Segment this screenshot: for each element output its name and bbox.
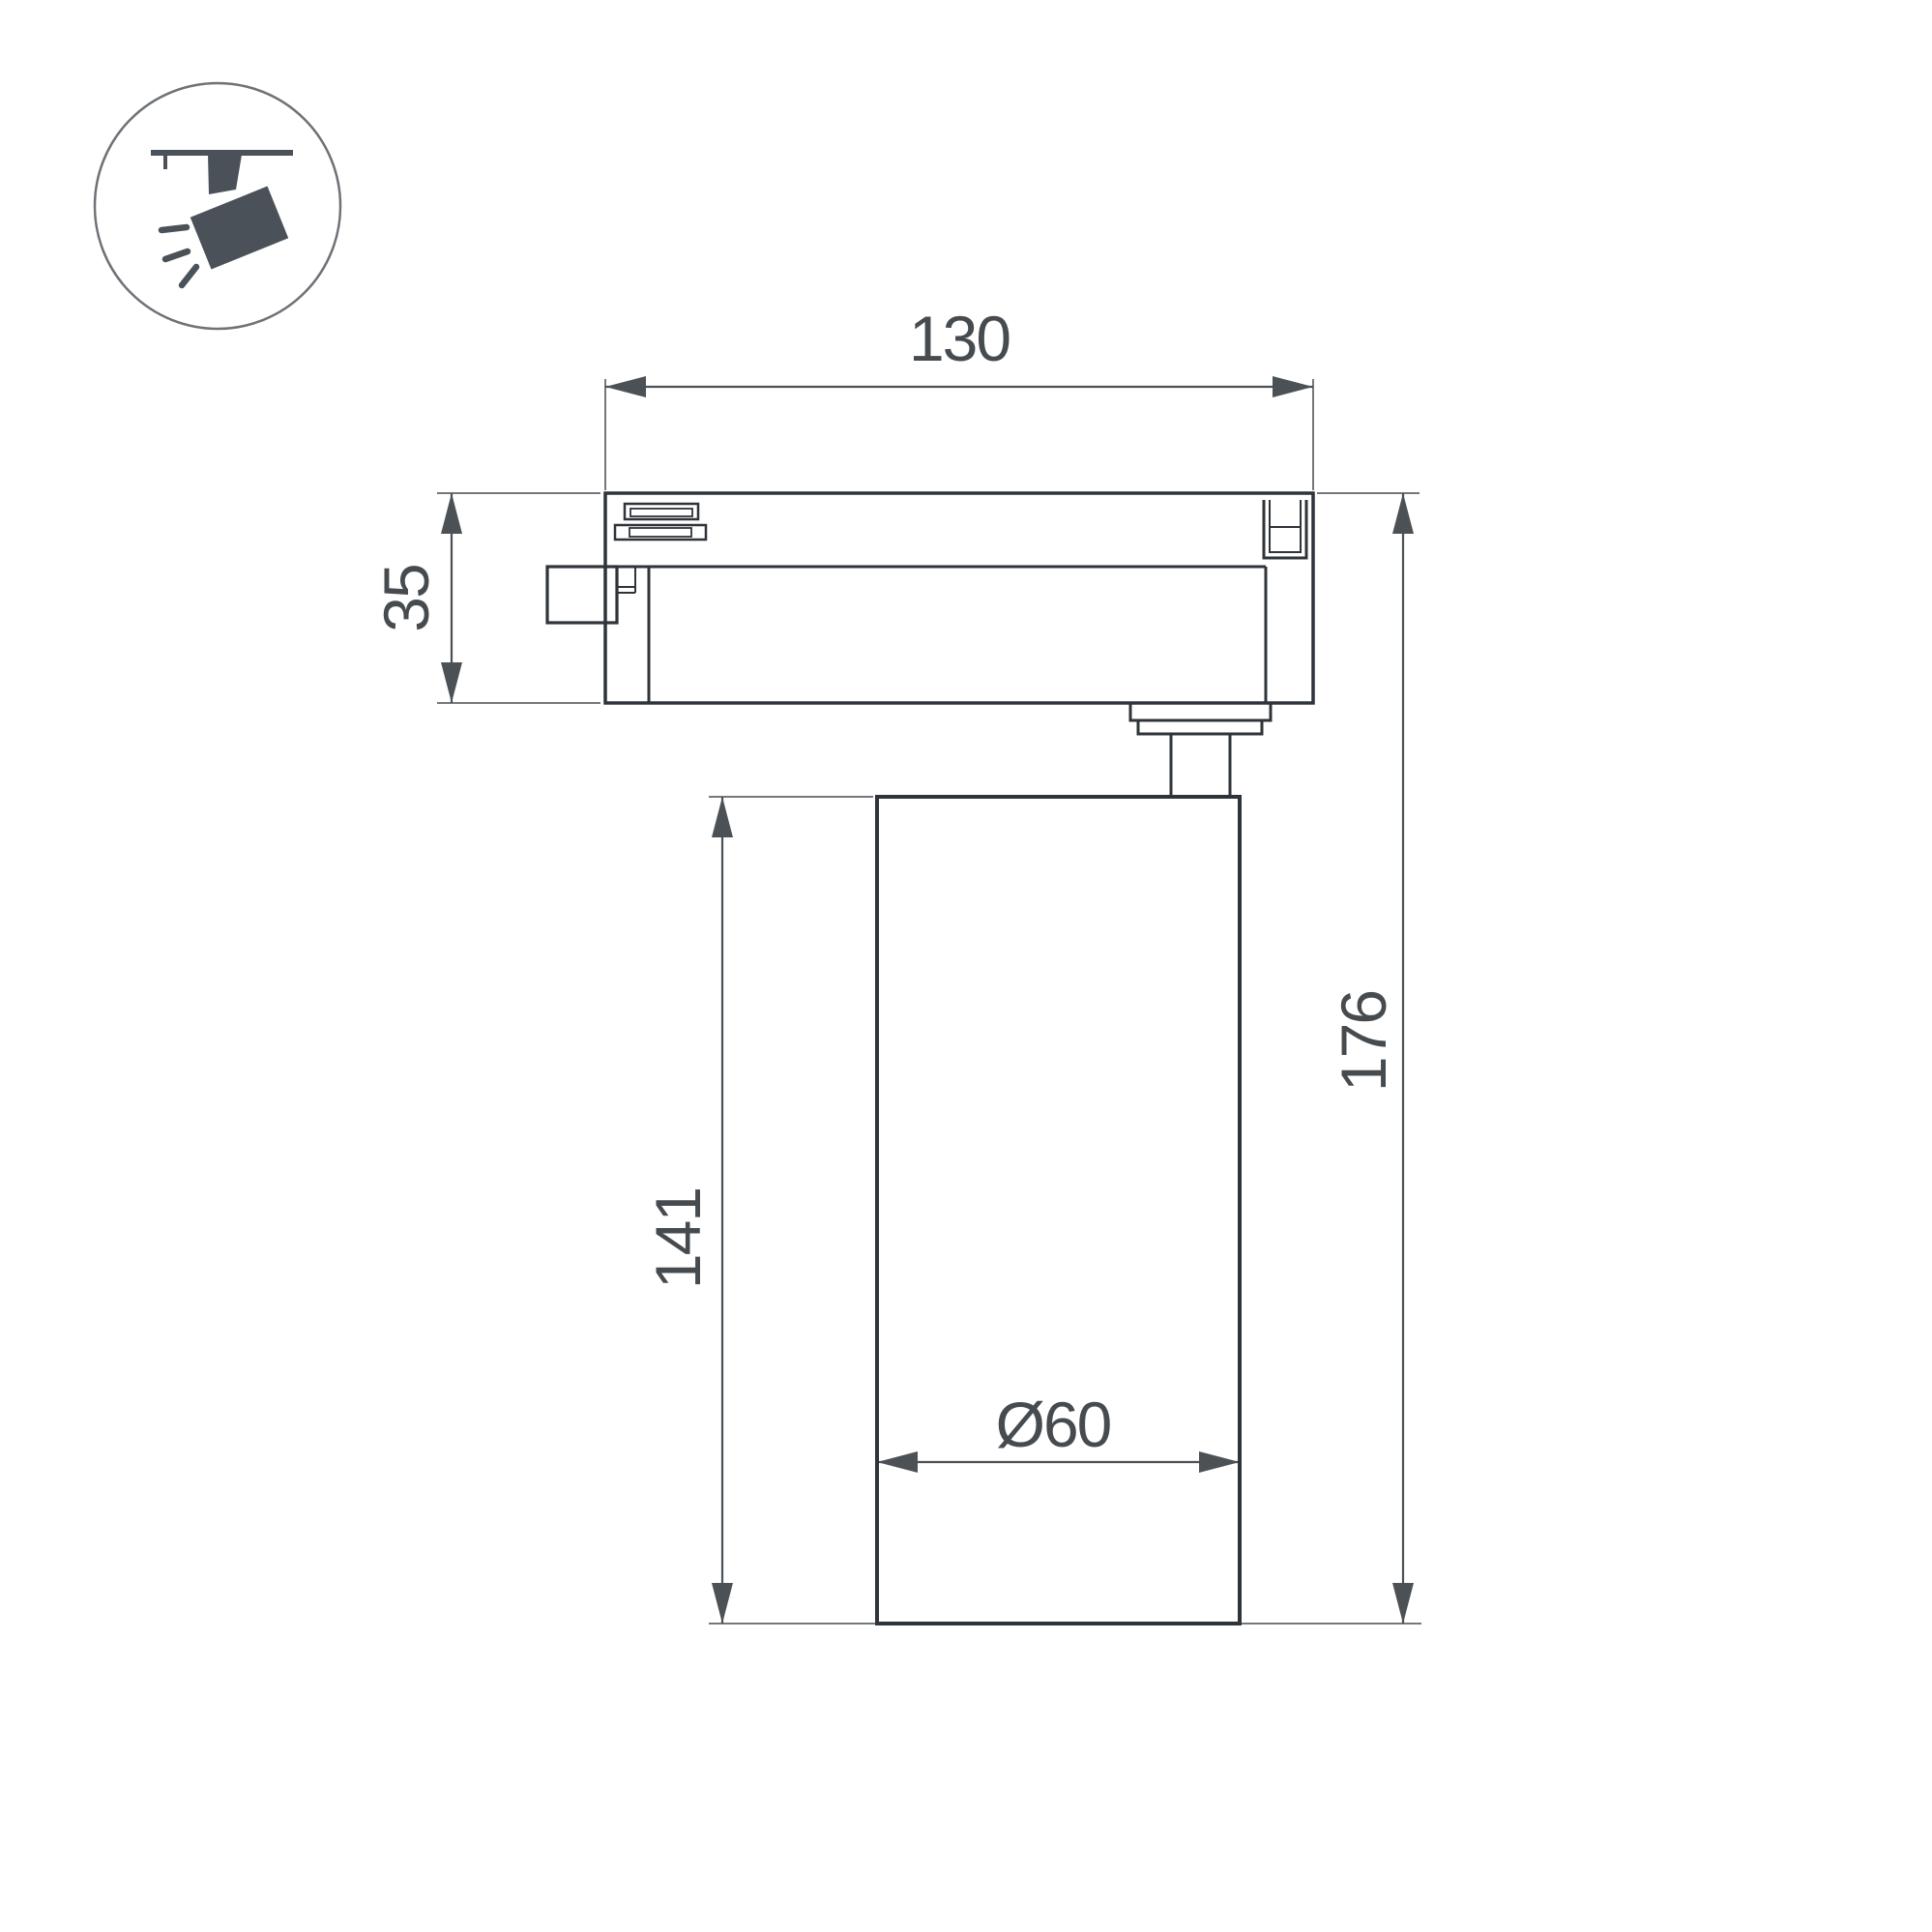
arrow-130-left [605,376,646,397]
label-track-adapter-width: 130 [909,303,1010,374]
arrow-35-top [441,493,462,534]
label-lamp-body-diameter: Ø60 [996,1389,1111,1460]
lamp-body-outline [877,797,1240,1624]
arrow-176-top [1392,493,1414,534]
dimension-arrows [441,376,1414,1624]
joint-flange-lower [1138,720,1262,734]
drawing-page: 130 35 141 176 Ø60 [0,0,1932,1932]
joint-flange-upper [1130,703,1271,720]
arrow-130-right [1273,376,1313,397]
contact-clip-upper-inner [630,509,692,516]
arrow-60-left [877,1451,918,1473]
icon-circle [95,83,340,329]
arrow-35-bottom [441,662,462,703]
arrow-141-bottom [712,1583,733,1624]
label-track-adapter-height: 35 [370,565,442,631]
label-lamp-body-height: 141 [642,1188,714,1289]
icon-track-spotlight [95,83,340,329]
object-lines [547,493,1313,1624]
contact-clip-lower-inner [629,528,691,537]
track-light-dimension-drawing: 130 35 141 176 Ø60 [0,0,1932,1932]
arrow-60-right [1199,1451,1240,1473]
label-total-height: 176 [1328,991,1399,1092]
arrow-176-bottom [1392,1583,1414,1624]
dimension-labels: 130 35 141 176 Ø60 [370,303,1399,1460]
icon-track-tick [163,156,167,169]
arrow-141-top [712,797,733,837]
adapter-outline [605,493,1313,703]
icon-ray-1 [161,227,187,230]
dimension-lines [452,387,1403,1624]
